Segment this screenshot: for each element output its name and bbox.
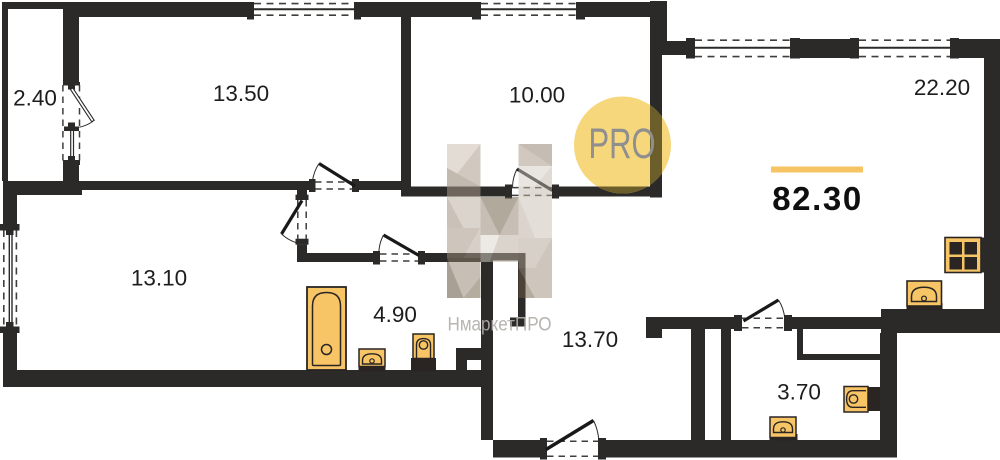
svg-text:13.50: 13.50 (213, 81, 269, 106)
svg-text:22.20: 22.20 (914, 75, 970, 100)
svg-text:3.70: 3.70 (777, 380, 821, 405)
svg-text:PRO: PRO (589, 120, 656, 168)
svg-text:4.90: 4.90 (373, 302, 417, 327)
svg-text:10.00: 10.00 (509, 83, 565, 108)
svg-text:НмаркетПРО: НмаркетПРО (448, 314, 552, 336)
svg-text:82.30: 82.30 (772, 180, 863, 217)
svg-text:13.10: 13.10 (131, 266, 187, 291)
svg-text:2.40: 2.40 (13, 86, 57, 111)
svg-text:13.70: 13.70 (562, 327, 618, 352)
